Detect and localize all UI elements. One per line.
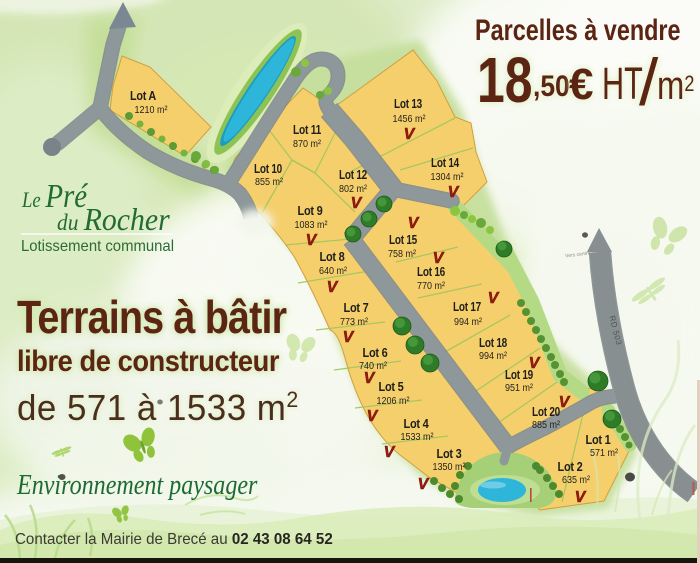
svg-text:870 m²: 870 m² [293, 139, 322, 150]
svg-text:V: V [384, 444, 396, 461]
svg-text:Lot 15: Lot 15 [389, 233, 417, 247]
svg-text:V: V [488, 290, 500, 307]
svg-text:Lot 8: Lot 8 [320, 250, 345, 264]
svg-text:Lot 18: Lot 18 [479, 336, 507, 350]
svg-text:V: V [408, 215, 420, 232]
svg-text:V: V [404, 126, 416, 143]
svg-text:773 m²: 773 m² [340, 317, 369, 328]
svg-text:V: V [575, 489, 587, 506]
svg-text:640 m²: 640 m² [319, 266, 348, 277]
svg-text:635 m²: 635 m² [562, 475, 591, 486]
svg-text:994 m²: 994 m² [479, 351, 508, 362]
svg-text:Lot A: Lot A [130, 89, 156, 103]
svg-text:Lot 12: Lot 12 [339, 168, 367, 182]
svg-text:1206 m²: 1206 m² [377, 396, 411, 407]
svg-text:770 m²: 770 m² [417, 281, 446, 292]
svg-text:Lot 7: Lot 7 [344, 301, 369, 315]
svg-text:802 m²: 802 m² [339, 184, 368, 195]
svg-text:V: V [327, 279, 339, 296]
svg-text:Lot 9: Lot 9 [298, 204, 323, 218]
svg-text:994 m²: 994 m² [454, 317, 483, 328]
svg-text:V: V [364, 370, 376, 387]
svg-text:1304 m²: 1304 m² [431, 172, 465, 183]
svg-text:V: V [529, 355, 541, 372]
svg-text:Lot 3: Lot 3 [437, 447, 462, 461]
svg-text:758 m²: 758 m² [388, 249, 417, 260]
svg-text:1533 m²: 1533 m² [401, 432, 435, 443]
svg-text:1083 m²: 1083 m² [295, 220, 329, 231]
svg-text:Lot 4: Lot 4 [404, 417, 429, 431]
svg-text:951 m²: 951 m² [505, 383, 534, 394]
svg-text:885 m²: 885 m² [532, 420, 561, 431]
svg-text:V: V [418, 476, 430, 493]
svg-text:1456 m²: 1456 m² [393, 114, 427, 125]
svg-text:Lot 10: Lot 10 [254, 162, 282, 176]
svg-text:Lot 20: Lot 20 [532, 405, 560, 419]
svg-text:571 m²: 571 m² [590, 448, 619, 459]
svg-text:V: V [559, 394, 571, 411]
svg-text:Lot 13: Lot 13 [394, 97, 422, 111]
svg-text:Lot 1: Lot 1 [586, 433, 611, 447]
svg-text:Lot 17: Lot 17 [453, 300, 481, 314]
svg-text:Lot 16: Lot 16 [417, 265, 445, 279]
svg-text:V: V [343, 329, 355, 346]
svg-text:V: V [433, 250, 445, 267]
svg-text:V: V [351, 195, 363, 212]
svg-text:V: V [367, 408, 379, 425]
svg-text:1350 m²: 1350 m² [433, 462, 467, 473]
svg-text:Lot 11: Lot 11 [293, 123, 321, 137]
svg-text:Lot 6: Lot 6 [363, 346, 388, 360]
svg-text:Lot 5: Lot 5 [379, 380, 404, 394]
svg-text:855 m²: 855 m² [255, 177, 284, 188]
svg-text:V: V [448, 184, 460, 201]
svg-text:Lot 14: Lot 14 [431, 156, 459, 170]
svg-text:V: V [306, 232, 318, 249]
svg-text:Lot 2: Lot 2 [558, 460, 583, 474]
svg-text:1210 m²: 1210 m² [135, 105, 169, 116]
